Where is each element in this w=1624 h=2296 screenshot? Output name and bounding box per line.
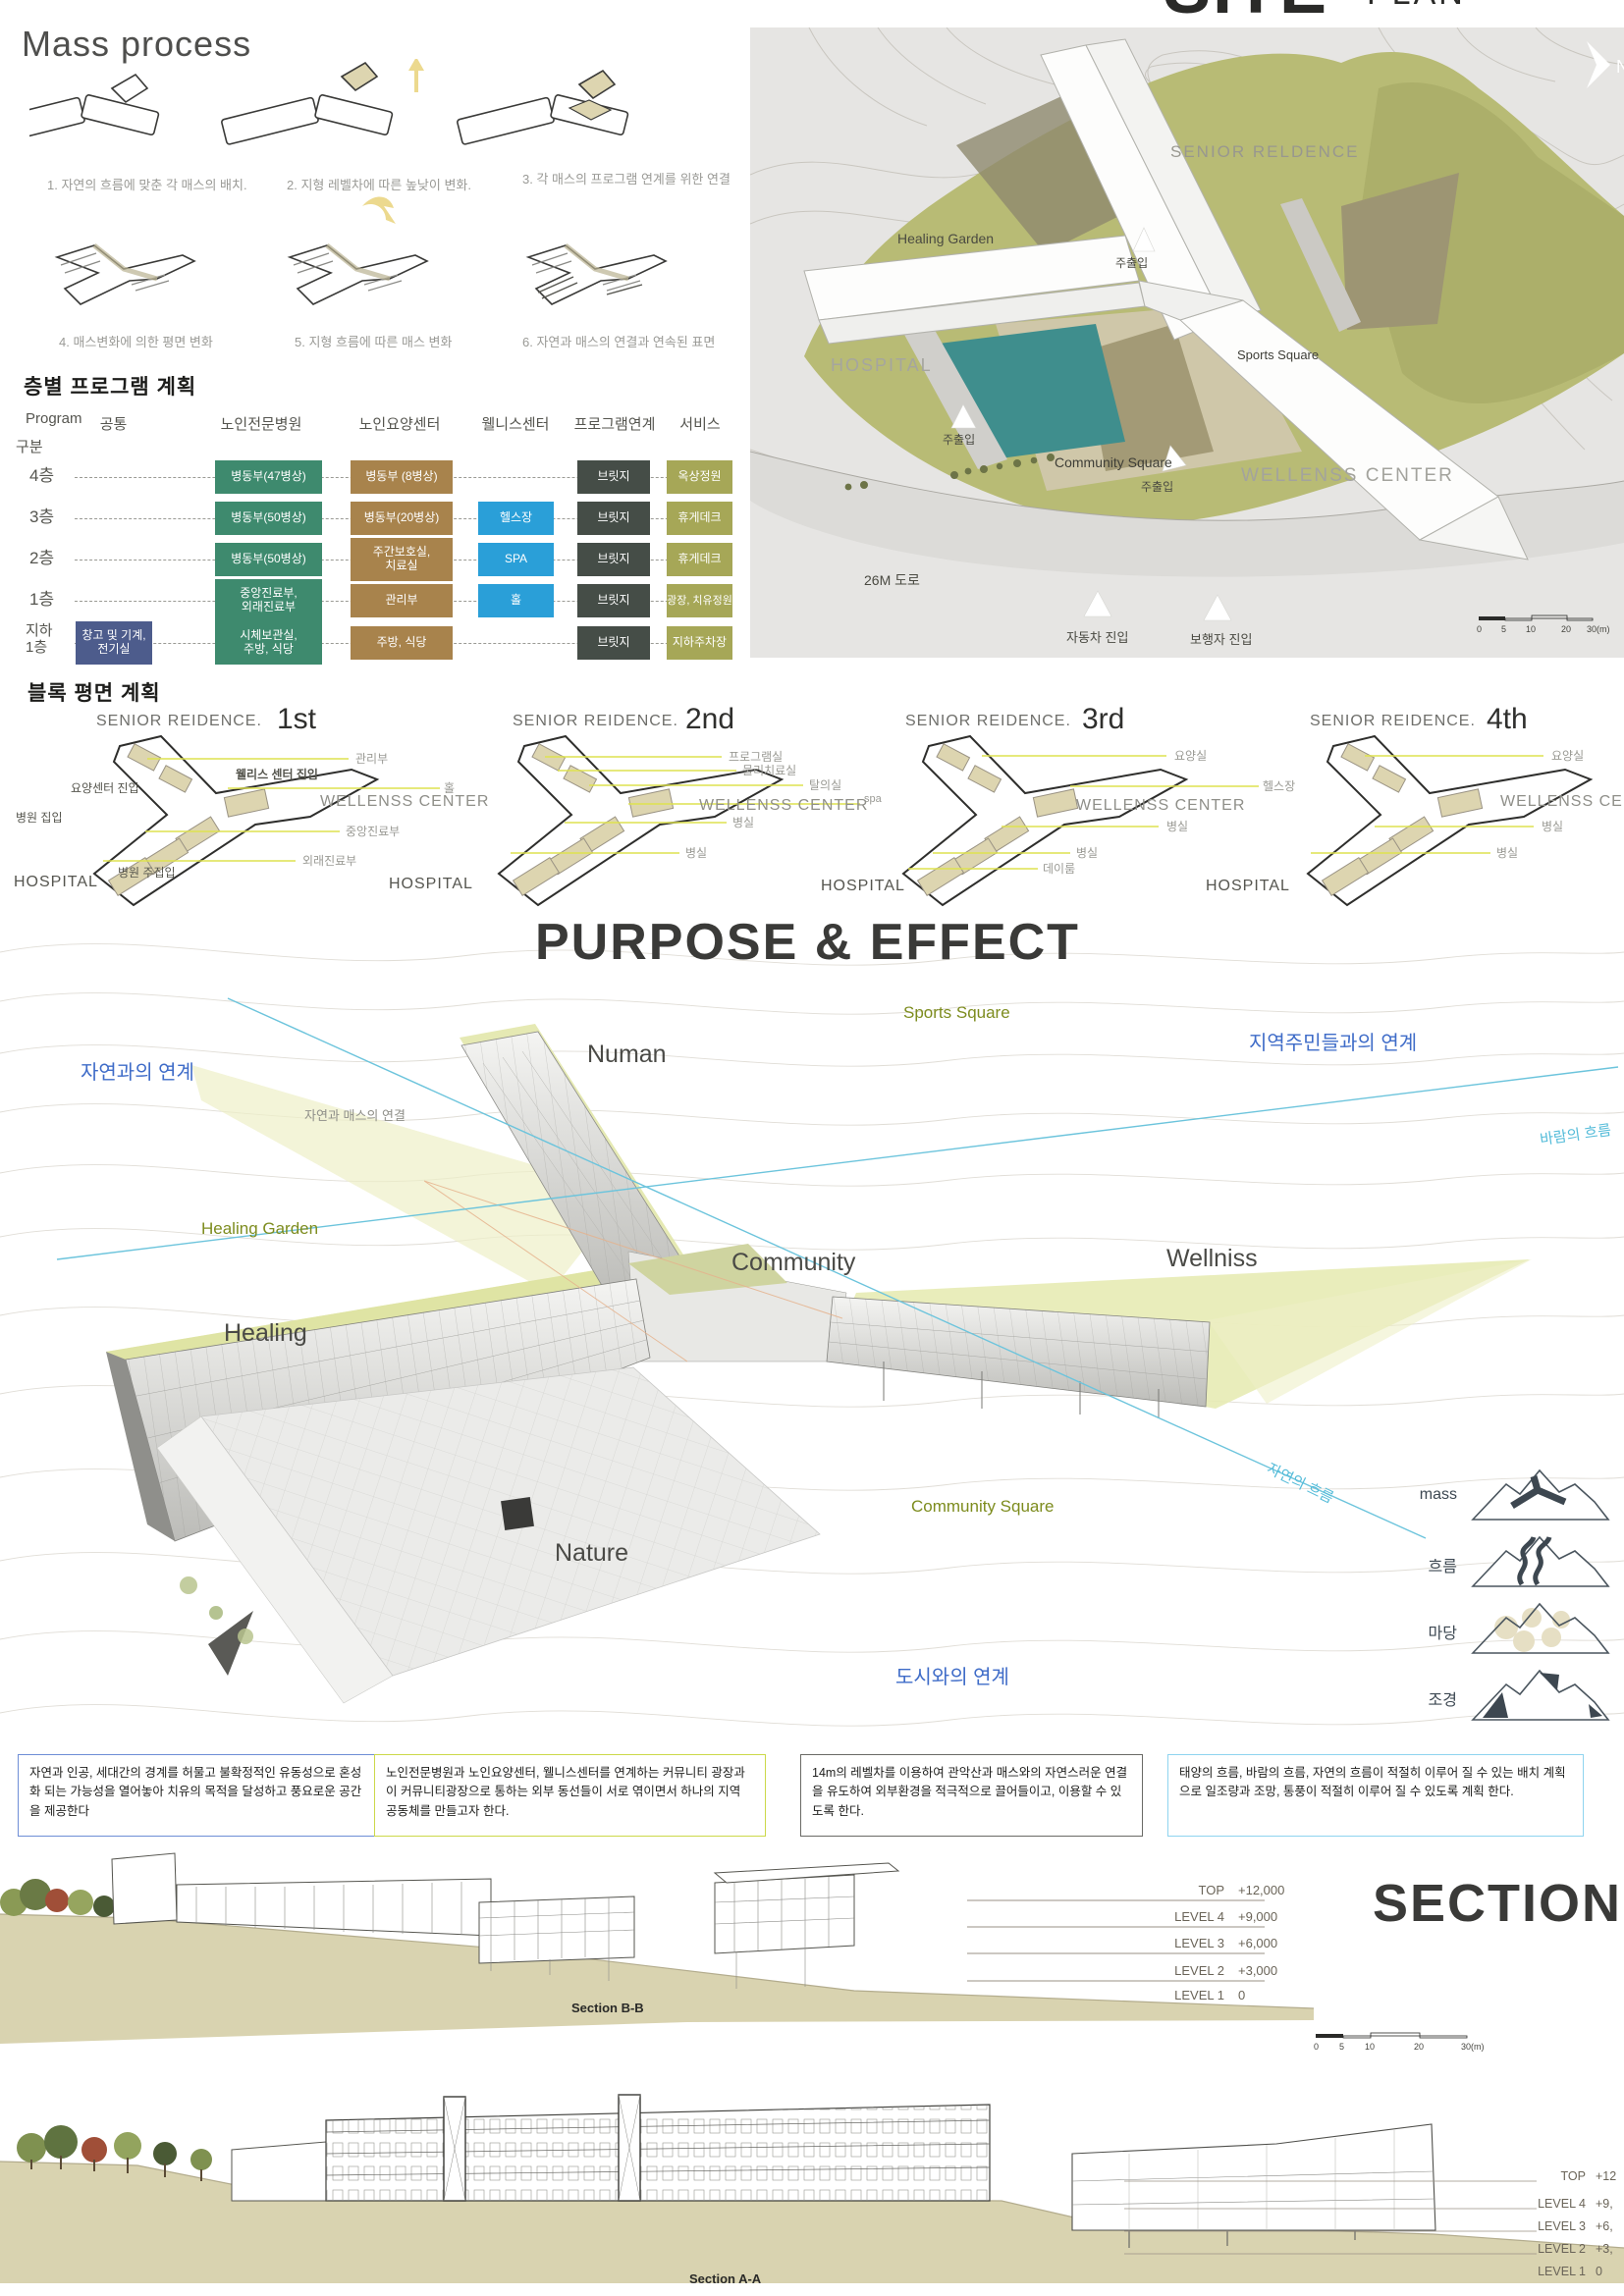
label-wellness-center: WELLENSS CENTER	[1241, 465, 1454, 486]
program-cell: 브릿지	[577, 584, 650, 617]
svg-text:5: 5	[1501, 624, 1506, 634]
program-cell: 병동부 (8병상)	[351, 460, 453, 494]
program-cell: 주방, 식당	[351, 626, 453, 660]
aa-main-building	[232, 2095, 990, 2201]
table-corner-program: Program	[26, 410, 82, 427]
col-header: 노인전문병원	[207, 413, 315, 434]
section-aa-label: Section A-A	[689, 2271, 761, 2286]
floor-program-title: 층별 프로그램 계획	[24, 371, 196, 400]
legend-yard-icon	[1465, 1598, 1612, 1659]
legend-mass-icon	[1465, 1465, 1612, 1525]
svg-text:30(m): 30(m)	[1461, 2042, 1485, 2052]
panel-wellness-label: WELLENSS CENTER	[1500, 793, 1624, 811]
plan-label: 외래진료부	[302, 852, 356, 869]
plan-label: 병실	[1496, 844, 1518, 861]
program-cell: 옥상정원	[667, 460, 732, 494]
program-cell: 헬스장	[478, 502, 554, 535]
program-cell: 홀	[478, 584, 554, 617]
aa-right-building	[1072, 2124, 1435, 2248]
col-header: 노인요양센터	[346, 413, 454, 434]
bb-ground	[0, 1914, 1314, 2044]
legend-label: 흐름	[1406, 1553, 1457, 1576]
program-cell: 브릿지	[577, 626, 650, 660]
site-plan-map: SENIOR RELDENCE Healing Garden HOSPITAL …	[750, 27, 1624, 658]
program-cell: 브릿지	[577, 502, 650, 535]
program-cell: SPA	[478, 543, 554, 576]
label-community-square: Community Square	[1055, 454, 1172, 470]
panel-hospital-label: HOSPITAL	[1206, 878, 1290, 895]
col-header: 공통	[86, 413, 140, 434]
panel-senior-label: SENIOR REIDENCE.	[96, 713, 262, 730]
panel-wellness-label: WELLENSS CENTER	[699, 797, 868, 815]
svg-text:20: 20	[1561, 624, 1571, 634]
purpose-note: 노인전문병원과 노인요양센터, 웰니스센터를 연계하는 커뮤니티 광장과 이 커…	[374, 1754, 766, 1837]
label-community: Community	[731, 1249, 855, 1277]
plan-label: 데이룸	[1043, 860, 1075, 877]
row-floor: 지하 1층	[26, 623, 53, 656]
program-cell: 시체보관실, 주방, 식당	[215, 621, 322, 665]
legend-landscape-icon	[1465, 1665, 1612, 1726]
plan-label: 병원 집입	[16, 809, 63, 826]
mass-process-diagrams	[29, 59, 727, 344]
section-bb-label: Section B-B	[571, 2001, 644, 2015]
plan-label: 병실	[1542, 818, 1563, 834]
row-floor: 3층	[29, 508, 54, 527]
label-nature-mass: 자연과 매스의 연결	[304, 1105, 406, 1124]
plan-label: 요양센터 진입	[71, 779, 139, 796]
purpose-note: 14m의 레벨차를 이용하여 관악산과 매스와의 자연스러운 연결을 유도하여 …	[800, 1754, 1143, 1837]
bb-level: LEVEL 10	[1154, 1988, 1245, 2002]
aa-level: LEVEL 2+3,	[1527, 2242, 1613, 2256]
label-link-nature: 자연과의 연계	[81, 1056, 194, 1085]
panel-hospital-label: HOSPITAL	[14, 874, 98, 891]
presentation-board: Mass process	[0, 0, 1624, 2296]
aa-level: LEVEL 3+6,	[1527, 2219, 1613, 2233]
program-cell: 주간보호실, 치료실	[351, 538, 453, 581]
panel-floor-number: 3rd	[1082, 703, 1124, 736]
legend-label: 마당	[1406, 1620, 1457, 1643]
panel-floor-number: 2nd	[685, 703, 734, 736]
row-floor: 2층	[29, 550, 54, 568]
svg-text:30(m): 30(m)	[1587, 624, 1610, 634]
label-healing-garden: Healing Garden	[201, 1219, 318, 1239]
purpose-title: PURPOSE & EFFECT	[535, 913, 1080, 972]
program-cell: 휴게데크	[667, 502, 732, 535]
plan-label: 병원 주집입	[118, 864, 176, 881]
site-plan-subtitle: PLAN	[1367, 0, 1466, 13]
program-cell: 브릿지	[577, 460, 650, 494]
label-hospital: HOSPITAL	[831, 355, 933, 375]
svg-text:10: 10	[1365, 2042, 1375, 2052]
plan-label: 탈의실	[809, 776, 841, 793]
bb-scale-bar: 0 5 10 20 30(m)	[1314, 2030, 1490, 2056]
table-corner-gubun: 구분	[16, 436, 43, 456]
program-cell: 병동부(20병상)	[351, 502, 453, 535]
community-plaza	[157, 1367, 820, 1703]
aa-level: LEVEL 4+9,	[1527, 2197, 1613, 2211]
section-title: SECTION	[1373, 1873, 1622, 1934]
plan-label: 요양실	[1551, 747, 1584, 764]
panel-senior-label: SENIOR REIDENCE.	[1310, 713, 1476, 730]
program-cell: 관리부	[351, 584, 453, 617]
label-sports-square: Sports Square	[1237, 347, 1319, 362]
plan-label: 관리부	[355, 750, 388, 767]
panel-floor-number: 1st	[277, 703, 316, 736]
label-entry: 주출입	[1141, 480, 1173, 494]
mass-step-caption: 1. 자연의 흐름에 맞춘 각 매스의 배치.	[47, 175, 247, 193]
svg-text:0: 0	[1477, 624, 1482, 634]
program-cell: 지하주차장	[667, 626, 732, 660]
program-cell: 병동부(50병상)	[215, 502, 322, 535]
plan-label: 병실	[685, 844, 707, 861]
section-aa-drawing	[0, 2091, 1624, 2296]
row-floor: 1층	[29, 591, 54, 610]
aa-level: LEVEL 10	[1527, 2265, 1602, 2278]
label-numan: Numan	[587, 1041, 667, 1069]
program-cell: 창고 및 기계, 전기실	[76, 621, 152, 665]
svg-text:0: 0	[1314, 2042, 1319, 2052]
plan-label: 병실	[732, 814, 754, 830]
label-healing: Healing	[224, 1319, 307, 1348]
mass-step-caption: 2. 지형 레벨차에 따른 높낮이 변화.	[287, 175, 471, 193]
col-header: 프로그램연계	[568, 413, 662, 434]
program-cell: 휴게데크	[667, 543, 732, 576]
plan-label: 물리치료실	[742, 762, 796, 778]
mass-step-caption: 4. 매스변화에 의한 평면 변화	[59, 332, 213, 350]
svg-text:10: 10	[1526, 624, 1536, 634]
program-cell: 광장, 치유정원	[667, 584, 732, 617]
svg-text:20: 20	[1414, 2042, 1424, 2052]
panel-hospital-label: HOSPITAL	[821, 878, 905, 895]
legend-label: mass	[1406, 1486, 1457, 1504]
label-wellniss: Wellniss	[1166, 1245, 1258, 1273]
label-link-residents: 지역주민들과의 연계	[1249, 1027, 1417, 1055]
plan-label: 웰리스 센터 집입	[236, 766, 318, 782]
svg-text:5: 5	[1339, 2042, 1344, 2052]
program-cell: 병동부(47병상)	[215, 460, 322, 494]
label-road: 26M 도로	[864, 572, 920, 588]
site-plan-title: SITE	[1164, 0, 1328, 29]
bb-level: LEVEL 4+9,000	[1154, 1909, 1277, 1924]
purpose-note: 자연과 인공, 세대간의 경계를 허물고 불확정적인 유동성으로 혼성화 되는 …	[18, 1754, 381, 1837]
bb-level: LEVEL 2+3,000	[1154, 1963, 1277, 1978]
mass-step-caption: 5. 지형 흐름에 따른 매스 변화	[295, 332, 452, 350]
panel-senior-label: SENIOR REIDENCE.	[905, 713, 1071, 730]
label-entry-ped: 보행자 진입	[1190, 632, 1252, 647]
label-entry: 주출입	[943, 433, 975, 447]
panel-floor-number: 4th	[1487, 703, 1528, 736]
plan-label: 병실	[1076, 844, 1098, 861]
svg-text:N: N	[1616, 57, 1624, 77]
plan-label: 요양실	[1174, 747, 1207, 764]
panel-hospital-label: HOSPITAL	[389, 876, 473, 893]
label-link-city: 도시와의 연계	[895, 1661, 1009, 1689]
panel-wellness-label: WELLENSS CENTER	[1076, 797, 1245, 815]
label-entry: 주출입	[1115, 256, 1148, 270]
label-entry-car: 자동차 진입	[1066, 630, 1128, 645]
plan-label: 중앙진료부	[346, 823, 400, 839]
col-header: 서비스	[672, 413, 729, 434]
legend-label: 조경	[1406, 1686, 1457, 1710]
plan-label: 병실	[1166, 818, 1188, 834]
block-plan-title: 블록 평면 계획	[27, 677, 161, 707]
row-floor: 4층	[29, 467, 54, 486]
legend-flow-icon	[1465, 1531, 1612, 1592]
program-cell: 병동부(50병상)	[215, 543, 322, 576]
panel-senior-label: SENIOR REIDENCE.	[513, 713, 678, 730]
block-plan-2nd	[463, 724, 856, 911]
col-header: 웰니스센터	[471, 413, 560, 434]
label-healing-garden: Healing Garden	[897, 231, 994, 246]
bb-level: LEVEL 3+6,000	[1154, 1936, 1277, 1950]
aa-level: TOP+12	[1539, 2169, 1616, 2183]
label-nature: Nature	[555, 1539, 628, 1568]
label-community-square: Community Square	[911, 1497, 1055, 1517]
label-senior-residence: SENIOR RELDENCE	[1170, 142, 1359, 161]
mass-step-caption: 3. 각 매스의 프로그램 연계를 위한 연결	[522, 169, 731, 187]
mass-step-caption: 6. 자연과 매스의 연결과 연속된 표면	[522, 332, 715, 350]
label-sports-square: Sports Square	[903, 1003, 1010, 1023]
bb-level: TOP+12,000	[1154, 1883, 1284, 1897]
program-cell: 브릿지	[577, 543, 650, 576]
program-cell: 중앙진료부, 외래진료부	[215, 579, 322, 622]
purpose-note: 태양의 흐름, 바람의 흐름, 자연의 흐름이 적절히 이루어 질 수 있는 배…	[1167, 1754, 1584, 1837]
